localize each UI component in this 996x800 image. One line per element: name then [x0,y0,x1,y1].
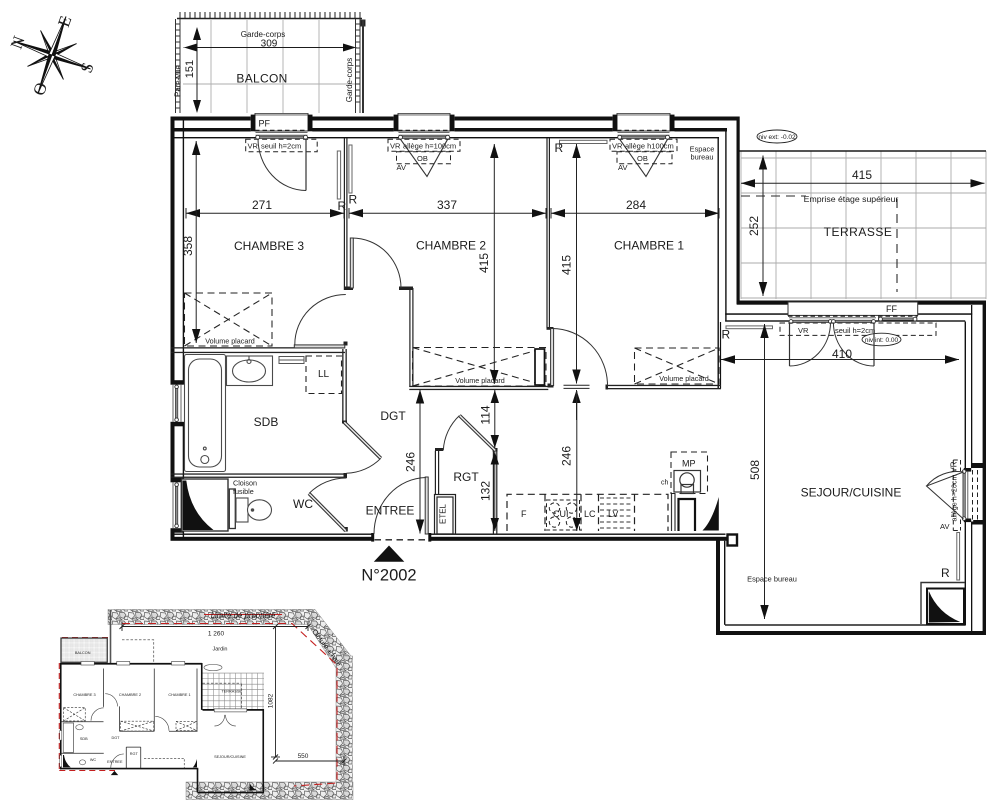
svg-text:SDB: SDB [80,737,88,741]
svg-text:LV: LV [608,509,618,519]
svg-text:R: R [349,193,358,207]
svg-text:niv ext: -0.02: niv ext: -0.02 [758,134,796,141]
svg-text:R: R [338,199,347,213]
svg-text:BALCON: BALCON [236,72,287,86]
svg-text:R: R [941,566,950,580]
svg-text:Volume placard: Volume placard [205,337,255,346]
svg-text:FF: FF [886,304,897,314]
svg-text:CHAMBRE 1: CHAMBRE 1 [614,239,684,253]
svg-text:R: R [722,328,731,342]
svg-text:Espace bureau: Espace bureau [747,575,797,584]
svg-text:114: 114 [479,405,493,424]
svg-text:OB: OB [417,154,428,163]
svg-text:508: 508 [748,460,762,480]
svg-text:N: N [7,33,29,51]
svg-text:415: 415 [560,255,574,275]
svg-text:358: 358 [181,236,195,256]
svg-text:SEJOUR/CUISINE: SEJOUR/CUISINE [214,755,246,759]
svg-text:RGT: RGT [130,752,139,756]
svg-text:VR: VR [390,142,401,151]
svg-text:CUI: CUI [553,509,569,519]
svg-text:allège h=20cm: allège h=20cm [950,475,959,522]
svg-text:R: R [555,141,564,155]
svg-text:SEJOUR/CUISINE: SEJOUR/CUISINE [801,486,902,500]
svg-text:LC: LC [584,509,596,519]
svg-text:415: 415 [477,253,491,273]
svg-text:OB: OB [637,154,648,163]
svg-text:1082: 1082 [268,693,275,708]
svg-text:WC: WC [293,497,313,511]
svg-text:VR: VR [248,142,259,151]
svg-text:Volume placard: Volume placard [455,376,505,385]
svg-text:ETEL: ETEL [439,503,448,524]
svg-text:ENTREE: ENTREE [366,504,415,518]
svg-text:VR: VR [950,461,959,472]
svg-text:BALCON: BALCON [75,651,91,655]
svg-text:N°2002: N°2002 [361,567,416,585]
svg-text:allège h100cm: allège h100cm [625,142,674,151]
svg-text:CHAMBRE 2: CHAMBRE 2 [416,239,486,253]
svg-text:337: 337 [437,198,457,212]
svg-text:PF: PF [259,119,271,129]
svg-text:Garde-corps: Garde-corps [345,58,354,102]
svg-text:DGT: DGT [380,409,406,423]
svg-text:F: F [521,509,527,519]
svg-text:271: 271 [252,198,272,212]
svg-text:252: 252 [747,216,761,236]
svg-text:309: 309 [261,39,278,50]
svg-text:O: O [29,80,51,98]
svg-text:VR: VR [798,326,809,335]
svg-text:niv int: 0.00: niv int: 0.00 [865,337,899,344]
svg-text:LL: LL [318,369,330,380]
svg-text:Pare-vue: Pare-vue [174,65,183,97]
svg-text:fusible: fusible [233,487,254,496]
svg-text:SDB: SDB [254,415,279,429]
svg-text:S: S [77,60,98,75]
svg-text:132: 132 [479,481,493,501]
svg-text:DGT: DGT [111,736,120,740]
svg-text:AV: AV [397,163,406,172]
svg-text:ENTREE: ENTREE [107,760,123,764]
svg-text:WC: WC [90,758,97,762]
svg-text:246: 246 [560,446,574,466]
svg-text:MP: MP [682,459,696,469]
svg-text:CHAMBRE 3: CHAMBRE 3 [234,239,304,253]
svg-text:RGT: RGT [453,470,479,484]
svg-text:CHAMBRE 3: CHAMBRE 3 [73,693,95,697]
svg-text:seuil h=2cm: seuil h=2cm [261,142,301,151]
svg-text:VR: VR [612,142,623,151]
svg-text:415: 415 [852,168,872,182]
svg-text:550: 550 [298,753,309,760]
svg-text:151: 151 [184,60,196,78]
svg-text:284: 284 [626,198,646,212]
svg-text:CHAMBRE 2: CHAMBRE 2 [119,693,141,697]
svg-text:Jardin: Jardin [213,647,228,653]
svg-text:bureau: bureau [690,153,713,162]
svg-text:CHAMBRE 1: CHAMBRE 1 [168,693,190,697]
svg-text:ch: ch [661,480,669,487]
svg-text:allège h=100cm: allège h=100cm [403,142,456,151]
svg-text:TERRASSE: TERRASSE [221,690,242,694]
svg-text:seuil h=2cm: seuil h=2cm [835,326,875,335]
svg-text:TERRASSE: TERRASSE [824,225,893,239]
svg-text:Volume placard: Volume placard [659,374,709,383]
svg-text:246: 246 [404,452,418,472]
svg-text:Limite de propriété: Limite de propriété [211,611,276,620]
svg-text:1 260: 1 260 [208,631,225,638]
svg-text:AV: AV [940,522,949,531]
svg-text:E: E [54,13,75,29]
svg-text:410: 410 [832,347,852,361]
svg-text:Emprise étage supérieur: Emprise étage supérieur [804,194,899,204]
svg-text:AV: AV [618,163,627,172]
